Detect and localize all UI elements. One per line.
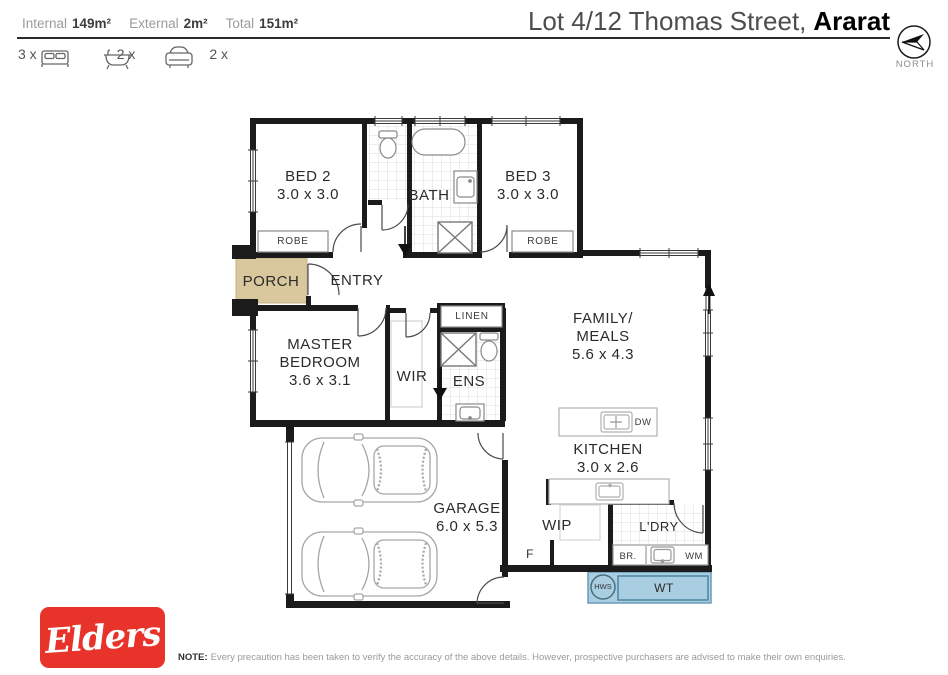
bath-shower-icon bbox=[438, 222, 472, 253]
stat-external: External2m² bbox=[129, 16, 208, 31]
room-label-ldry: L'DRY bbox=[639, 518, 678, 536]
floorplan-page: Internal149m² External2m² Total151m² Lot… bbox=[0, 0, 948, 675]
amenities-row: 3 x 2 x 2 x bbox=[18, 46, 236, 62]
stat-total: Total151m² bbox=[226, 16, 299, 31]
elders-logo: Elders bbox=[40, 607, 165, 668]
elders-logo-text: Elders bbox=[44, 614, 162, 662]
room-label-wip: WIP bbox=[542, 517, 572, 535]
wt-label: WT bbox=[654, 579, 674, 597]
bathtub-icon bbox=[412, 129, 465, 155]
room-label-porch: PORCH bbox=[243, 273, 300, 291]
car-top-icon bbox=[302, 528, 437, 600]
ens-toilet-icon bbox=[480, 333, 498, 361]
floorplan-drawing bbox=[0, 0, 948, 675]
bed-count: 3 x bbox=[18, 46, 99, 62]
room-label-family: FAMILY/ MEALS 5.6 x 4.3 bbox=[572, 310, 634, 364]
dw-label: DW bbox=[635, 414, 652, 432]
ens-shower-icon bbox=[441, 333, 476, 366]
area-stats: Internal149m² External2m² Total151m² bbox=[22, 16, 298, 31]
bath-count: 2 x bbox=[117, 46, 192, 62]
room-label-master: MASTER BEDROOM 3.6 x 3.1 bbox=[279, 336, 360, 390]
room-label-entry: ENTRY bbox=[330, 272, 383, 290]
stat-internal: Internal149m² bbox=[22, 16, 111, 31]
car-count: 2 x bbox=[209, 46, 228, 62]
robe3-label: ROBE bbox=[527, 233, 559, 251]
room-label-garage: GARAGE6.0 x 5.3 bbox=[433, 500, 500, 536]
fridge-label: F bbox=[526, 545, 534, 563]
page-title: Lot 4/12 Thomas Street,Ararat bbox=[528, 6, 890, 37]
robe2-label: ROBE bbox=[277, 233, 309, 251]
room-label-bed2: BED 23.0 x 3.0 bbox=[277, 168, 339, 204]
kitchen-bench bbox=[549, 479, 669, 504]
bath-vanity-icon bbox=[454, 171, 477, 203]
room-label-ens: ENS bbox=[453, 373, 485, 391]
header-divider bbox=[17, 37, 890, 39]
room-label-bed3: BED 33.0 x 3.0 bbox=[497, 168, 559, 204]
hws-label: HWS bbox=[594, 578, 612, 596]
room-label-wir: WIR bbox=[397, 368, 428, 386]
north-label: NORTH bbox=[894, 59, 936, 70]
car-top-icon bbox=[302, 434, 437, 506]
disclaimer-note: NOTE:Every precaution has been taken to … bbox=[178, 652, 938, 663]
broom-label: BR. bbox=[619, 548, 636, 566]
wc-toilet-icon bbox=[379, 131, 397, 158]
linen-label: LINEN bbox=[455, 308, 488, 326]
north-compass-icon bbox=[898, 26, 930, 58]
wm-label: WM bbox=[685, 548, 703, 566]
ens-vanity-icon bbox=[456, 404, 484, 421]
room-label-bath: BATH bbox=[409, 187, 450, 205]
room-label-kitchen: KITCHEN3.0 x 2.6 bbox=[573, 441, 642, 477]
